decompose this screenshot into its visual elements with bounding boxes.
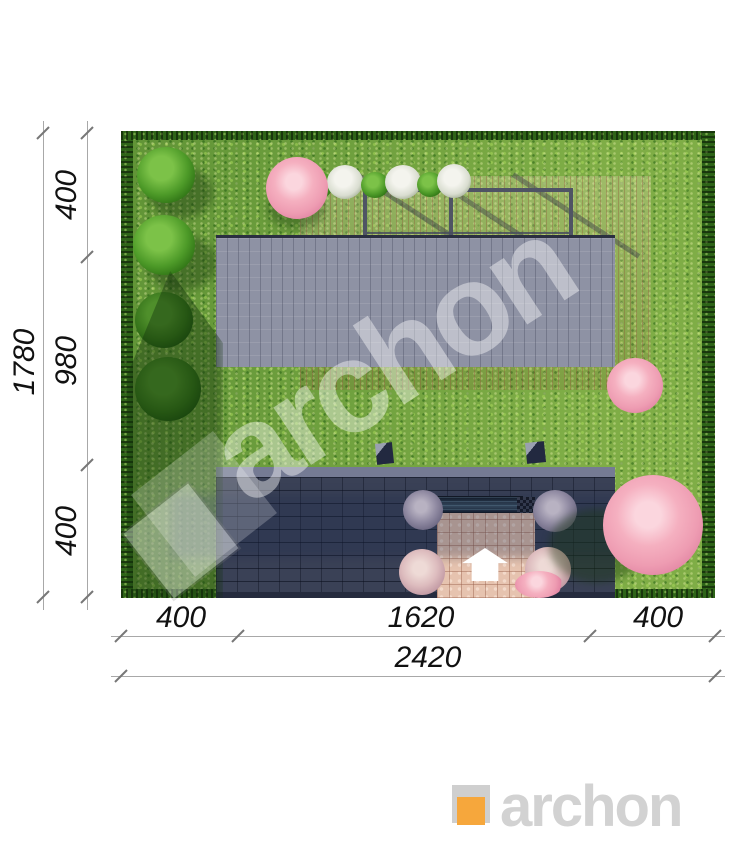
dim-label-bottom-seg2: 1620 [388,601,455,635]
site-plan-page: archon 1780 400 980 400 400 1620 400 242… [0,0,734,854]
dim-label-bottom-seg3: 400 [633,601,683,635]
brand-logo-text: archon [500,778,681,836]
dim-label-bottom-total: 2420 [395,641,462,675]
pink-tree-deck-corner [607,358,663,413]
pink-tree-top [266,157,328,219]
dim-label-left-seg2: 980 [50,336,84,386]
logo-square-orange [457,797,485,825]
dim-label-left-total: 1780 [8,329,42,396]
dim-label-bottom-seg1: 400 [156,601,206,635]
garden-bush [137,147,195,203]
deck-bush-white [437,164,471,198]
dim-line-bottom-total [111,676,725,677]
dim-line-bottom-segments [111,636,725,637]
deck-bush-white [385,165,421,199]
hedge-right [702,131,715,598]
hedge-top [121,131,715,140]
dim-label-left-seg1: 400 [50,170,84,220]
entrance-shrub [403,490,443,530]
dim-line-left-segments [87,121,88,610]
dim-label-left-seg3: 400 [50,506,84,556]
entrance-shrub [399,549,445,595]
garden-bush [133,215,195,275]
deck-bush-white [327,165,363,199]
pink-tree-large [603,475,703,575]
dim-line-left-total [43,121,44,610]
roof-window [525,441,546,464]
pink-bush-bottom [515,571,563,598]
